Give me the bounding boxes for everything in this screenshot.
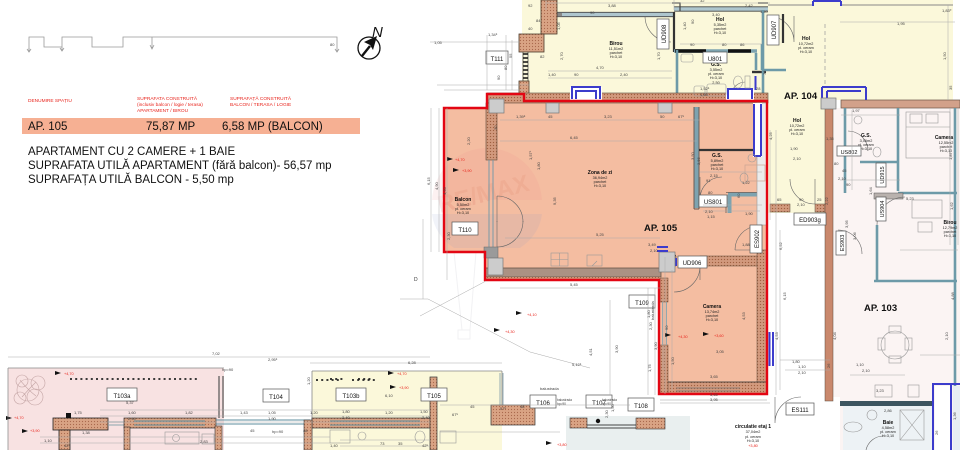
svg-text:67⁵: 67⁵ bbox=[678, 114, 684, 119]
svg-text:2,40: 2,40 bbox=[620, 72, 629, 77]
svg-text:5,25: 5,25 bbox=[596, 232, 605, 237]
svg-text:90: 90 bbox=[690, 42, 695, 47]
svg-text:35: 35 bbox=[948, 85, 953, 90]
svg-text:2,95⁵: 2,95⁵ bbox=[268, 357, 278, 362]
svg-text:UD915: UD915 bbox=[880, 166, 886, 183]
svg-text:balustrada: balustrada bbox=[650, 301, 655, 320]
svg-text:N: N bbox=[372, 24, 383, 41]
svg-text:hp=90: hp=90 bbox=[222, 367, 234, 372]
svg-text:1,20: 1,20 bbox=[310, 410, 319, 415]
svg-text:2,10: 2,10 bbox=[797, 202, 806, 207]
svg-text:H=3,10: H=3,10 bbox=[457, 211, 469, 215]
svg-text:9,35: 9,35 bbox=[552, 196, 557, 205]
svg-text:2,10: 2,10 bbox=[838, 176, 847, 181]
svg-text:1,22: 1,22 bbox=[742, 180, 751, 185]
svg-text:SUPRAFATA CONSTRUITĂ: SUPRAFATA CONSTRUITĂ bbox=[137, 95, 198, 102]
svg-text:1,10: 1,10 bbox=[856, 362, 865, 367]
svg-text:D: D bbox=[414, 277, 418, 283]
svg-text:1,10: 1,10 bbox=[44, 438, 53, 443]
svg-text:2,30: 2,30 bbox=[604, 409, 609, 418]
svg-text:3,50: 3,50 bbox=[690, 151, 695, 160]
svg-text:86: 86 bbox=[740, 42, 745, 47]
svg-text:1,75: 1,75 bbox=[74, 410, 83, 415]
svg-text:UD906: UD906 bbox=[683, 261, 702, 267]
svg-text:73: 73 bbox=[380, 441, 385, 446]
svg-text:hp=90: hp=90 bbox=[557, 402, 566, 406]
svg-text:1,80: 1,80 bbox=[536, 161, 541, 170]
svg-text:45: 45 bbox=[548, 114, 553, 119]
svg-text:T106: T106 bbox=[536, 401, 550, 407]
svg-text:45: 45 bbox=[842, 168, 847, 173]
svg-text:2,15: 2,15 bbox=[710, 173, 719, 178]
svg-text:2,22: 2,22 bbox=[824, 196, 829, 205]
svg-text:+4,70: +4,70 bbox=[455, 158, 465, 162]
svg-text:35: 35 bbox=[398, 441, 403, 446]
svg-text:4,90: 4,90 bbox=[434, 181, 439, 190]
svg-text:H=3,10: H=3,10 bbox=[714, 31, 726, 35]
svg-text:+3,90: +3,90 bbox=[30, 429, 40, 433]
svg-text:45: 45 bbox=[250, 428, 255, 433]
svg-text:1,95: 1,95 bbox=[897, 21, 906, 26]
svg-text:3,90: 3,90 bbox=[653, 341, 658, 350]
svg-text:H=3,10: H=3,10 bbox=[791, 132, 803, 136]
svg-text:H=3,10: H=3,10 bbox=[711, 167, 723, 171]
svg-text:1,97: 1,97 bbox=[852, 108, 861, 113]
svg-text:4,25: 4,25 bbox=[768, 131, 773, 140]
svg-text:42⁵: 42⁵ bbox=[422, 443, 428, 448]
svg-text:2,10: 2,10 bbox=[650, 248, 659, 253]
svg-text:+3,80: +3,80 bbox=[748, 444, 758, 448]
svg-text:80: 80 bbox=[503, 65, 508, 70]
svg-text:1,05: 1,05 bbox=[556, 21, 561, 30]
svg-text:92: 92 bbox=[528, 3, 533, 8]
svg-text:1,82: 1,82 bbox=[185, 410, 194, 415]
svg-text:4,53: 4,53 bbox=[774, 331, 779, 340]
svg-text:T109: T109 bbox=[635, 301, 649, 307]
svg-text:82: 82 bbox=[540, 54, 545, 59]
svg-text:3,06: 3,06 bbox=[852, 231, 857, 240]
svg-text:US802: US802 bbox=[841, 150, 858, 156]
svg-text:1,50: 1,50 bbox=[700, 92, 709, 97]
svg-text:48: 48 bbox=[520, 404, 525, 409]
svg-text:SUPRAFAȚĂ CONSTRUITĂ: SUPRAFAȚĂ CONSTRUITĂ bbox=[230, 95, 292, 102]
svg-text:65: 65 bbox=[777, 197, 782, 202]
svg-text:42⁵: 42⁵ bbox=[64, 443, 70, 448]
svg-text:1,36: 1,36 bbox=[952, 411, 957, 420]
svg-text:AP. 105: AP. 105 bbox=[28, 121, 67, 133]
svg-text:1,35: 1,35 bbox=[826, 136, 835, 141]
svg-text:90: 90 bbox=[574, 72, 579, 77]
svg-text:AP. 104: AP. 104 bbox=[784, 91, 818, 102]
svg-text:3,88: 3,88 bbox=[608, 3, 617, 8]
svg-text:2,83: 2,83 bbox=[200, 439, 209, 444]
svg-text:1,43: 1,43 bbox=[240, 410, 249, 415]
svg-text:H=3,10: H=3,10 bbox=[800, 50, 812, 54]
svg-text:H=3,10: H=3,10 bbox=[594, 184, 606, 188]
svg-text:UD907: UD907 bbox=[772, 20, 778, 39]
svg-text:45: 45 bbox=[470, 404, 475, 409]
svg-text:1,57⁵: 1,57⁵ bbox=[528, 150, 533, 160]
svg-text:US904: US904 bbox=[880, 201, 886, 218]
svg-text:1,50: 1,50 bbox=[420, 409, 429, 414]
svg-text:1,88: 1,88 bbox=[742, 242, 751, 247]
svg-text:1,70: 1,70 bbox=[656, 51, 661, 60]
svg-text:1,40: 1,40 bbox=[682, 21, 687, 30]
svg-text:T111: T111 bbox=[491, 57, 504, 63]
svg-text:1,10: 1,10 bbox=[798, 364, 807, 369]
svg-text:2,10: 2,10 bbox=[944, 331, 949, 340]
svg-text:1,20: 1,20 bbox=[306, 376, 311, 385]
svg-text:6,52: 6,52 bbox=[778, 241, 783, 250]
svg-text:7,02: 7,02 bbox=[212, 351, 221, 356]
svg-text:4,51: 4,51 bbox=[588, 347, 593, 356]
svg-text:37,04m2: 37,04m2 bbox=[746, 430, 761, 434]
svg-text:T110: T110 bbox=[458, 228, 472, 234]
svg-text:2,20: 2,20 bbox=[466, 136, 471, 145]
svg-text:BALCON / TERASA / LOGIE: BALCON / TERASA / LOGIE bbox=[230, 102, 291, 108]
svg-text:67⁵: 67⁵ bbox=[452, 412, 458, 417]
svg-text:3,23: 3,23 bbox=[604, 114, 613, 119]
svg-text:80: 80 bbox=[722, 42, 727, 47]
svg-text:1,38: 1,38 bbox=[82, 430, 91, 435]
svg-text:1,20: 1,20 bbox=[385, 410, 394, 415]
svg-text:UD908: UD908 bbox=[662, 24, 668, 43]
svg-text:hp=90: hp=90 bbox=[272, 429, 284, 434]
svg-text:AP. 105: AP. 105 bbox=[644, 223, 678, 234]
svg-text:5,23: 5,23 bbox=[906, 196, 915, 201]
svg-text:(inclusiv balcon / logie / ter: (inclusiv balcon / logie / terasa) bbox=[137, 102, 203, 108]
svg-text:80: 80 bbox=[834, 161, 839, 166]
svg-text:2,10: 2,10 bbox=[798, 370, 807, 375]
svg-text:APARTAMENT / BIROU: APARTAMENT / BIROU bbox=[137, 108, 189, 114]
svg-text:SUPRAFATA UTILĂ APARTAMENT (fă: SUPRAFATA UTILĂ APARTAMENT (fără balcon)… bbox=[28, 159, 332, 172]
svg-text:1,80: 1,80 bbox=[342, 409, 351, 414]
svg-text:4,88: 4,88 bbox=[950, 291, 955, 300]
svg-text:4,04: 4,04 bbox=[832, 331, 837, 340]
svg-text:76: 76 bbox=[762, 70, 767, 75]
svg-text:80: 80 bbox=[330, 42, 335, 47]
svg-text:2,40: 2,40 bbox=[342, 415, 351, 420]
svg-text:5,45: 5,45 bbox=[570, 282, 579, 287]
svg-text:+4,70: +4,70 bbox=[64, 372, 74, 376]
svg-text:2,40: 2,40 bbox=[128, 416, 137, 421]
svg-text:2,70: 2,70 bbox=[559, 51, 564, 60]
svg-text:DENUMIRE SPAȚIU: DENUMIRE SPAȚIU bbox=[28, 98, 72, 104]
svg-text:1,90: 1,90 bbox=[745, 211, 754, 216]
svg-text:1,60: 1,60 bbox=[128, 410, 137, 415]
svg-text:3,56: 3,56 bbox=[696, 156, 701, 165]
svg-text:80: 80 bbox=[708, 190, 713, 195]
svg-text:32: 32 bbox=[700, 0, 705, 3]
svg-text:50: 50 bbox=[660, 114, 665, 119]
svg-text:55: 55 bbox=[508, 53, 513, 58]
svg-text:1,62: 1,62 bbox=[949, 201, 954, 210]
svg-text:T104: T104 bbox=[269, 395, 283, 401]
svg-text:U801: U801 bbox=[708, 57, 723, 63]
svg-text:1,87: 1,87 bbox=[948, 151, 953, 160]
svg-text:1,39⁵: 1,39⁵ bbox=[516, 114, 526, 119]
svg-text:5,37: 5,37 bbox=[126, 400, 135, 405]
svg-text:1,15: 1,15 bbox=[707, 214, 716, 219]
svg-text:4,70: 4,70 bbox=[596, 65, 605, 70]
svg-text:1,34⁵: 1,34⁵ bbox=[488, 32, 498, 37]
svg-text:1,90: 1,90 bbox=[790, 146, 799, 151]
svg-text:2,30: 2,30 bbox=[446, 231, 451, 240]
svg-text:3,90: 3,90 bbox=[614, 344, 619, 353]
svg-text:1,40: 1,40 bbox=[548, 72, 557, 77]
svg-text:2,10: 2,10 bbox=[862, 368, 871, 373]
svg-text:3,65: 3,65 bbox=[710, 392, 719, 397]
svg-text:balustrada: balustrada bbox=[540, 386, 559, 391]
svg-text:1,40: 1,40 bbox=[760, 9, 769, 14]
svg-text:30: 30 bbox=[493, 125, 498, 130]
svg-text:ES111: ES111 bbox=[791, 408, 809, 414]
svg-text:H=3,10: H=3,10 bbox=[747, 439, 759, 443]
svg-text:2,40: 2,40 bbox=[422, 415, 431, 420]
svg-text:+3,80: +3,80 bbox=[557, 443, 567, 447]
svg-text:5,12⁵: 5,12⁵ bbox=[572, 362, 582, 367]
svg-text:40: 40 bbox=[528, 26, 533, 31]
svg-text:1,64: 1,64 bbox=[868, 186, 873, 195]
svg-text:6,15: 6,15 bbox=[426, 176, 431, 185]
svg-text:T105: T105 bbox=[427, 394, 441, 400]
svg-text:APARTAMENT CU 2 CAMERE + 1 BAI: APARTAMENT CU 2 CAMERE + 1 BAIE bbox=[28, 146, 235, 158]
svg-text:+4,30: +4,30 bbox=[505, 330, 515, 334]
svg-text:4,53: 4,53 bbox=[741, 311, 746, 320]
svg-text:3,40: 3,40 bbox=[712, 12, 721, 17]
svg-text:1,05: 1,05 bbox=[268, 410, 277, 415]
svg-text:3,23: 3,23 bbox=[876, 388, 885, 393]
svg-text:90: 90 bbox=[664, 325, 669, 330]
svg-text:H=3,10: H=3,10 bbox=[610, 55, 622, 59]
svg-text:57⁵: 57⁵ bbox=[500, 406, 506, 411]
svg-text:4,60: 4,60 bbox=[442, 186, 447, 195]
svg-text:75,87 MP: 75,87 MP bbox=[146, 121, 196, 133]
svg-text:1,05: 1,05 bbox=[434, 40, 443, 45]
svg-text:SUPRAFAȚA UTILĂ BALCON - 5,50: SUPRAFAȚA UTILĂ BALCON - 5,50 mp bbox=[28, 173, 234, 186]
svg-text:26: 26 bbox=[934, 430, 939, 435]
svg-text:28: 28 bbox=[756, 86, 761, 91]
svg-text:1,40: 1,40 bbox=[330, 443, 339, 448]
svg-text:6,15: 6,15 bbox=[782, 291, 787, 300]
svg-text:ED903g: ED903g bbox=[799, 218, 821, 224]
svg-text:1,50: 1,50 bbox=[670, 356, 675, 365]
svg-text:2,50: 2,50 bbox=[712, 81, 719, 85]
svg-text:6,58 MP (BALCON): 6,58 MP (BALCON) bbox=[222, 121, 323, 133]
svg-text:T108: T108 bbox=[634, 404, 648, 410]
svg-text:ES903: ES903 bbox=[840, 235, 846, 252]
svg-text:90: 90 bbox=[690, 19, 695, 24]
svg-text:2,10: 2,10 bbox=[793, 156, 802, 161]
svg-text:3,49: 3,49 bbox=[648, 242, 657, 247]
svg-text:1,50: 1,50 bbox=[942, 51, 947, 60]
svg-text:6,28: 6,28 bbox=[408, 360, 417, 365]
svg-text:+4,30: +4,30 bbox=[678, 335, 688, 339]
svg-text:26: 26 bbox=[826, 363, 831, 368]
svg-text:H=3,10: H=3,10 bbox=[882, 434, 894, 438]
svg-text:90: 90 bbox=[496, 75, 501, 80]
svg-text:1,75: 1,75 bbox=[647, 363, 652, 372]
svg-text:AP. 103: AP. 103 bbox=[864, 303, 897, 314]
svg-text:+3,60: +3,60 bbox=[714, 334, 724, 338]
svg-text:25: 25 bbox=[817, 197, 822, 202]
svg-text:T103b: T103b bbox=[342, 394, 360, 400]
svg-text:84: 84 bbox=[536, 18, 541, 23]
svg-text:H=3,10: H=3,10 bbox=[706, 318, 718, 322]
svg-text:+3,90: +3,90 bbox=[399, 386, 409, 390]
svg-text:1,90: 1,90 bbox=[268, 416, 277, 421]
svg-text:3,95: 3,95 bbox=[844, 219, 849, 228]
svg-text:6,10: 6,10 bbox=[385, 393, 394, 398]
svg-text:90: 90 bbox=[846, 182, 851, 187]
svg-text:3,05: 3,05 bbox=[716, 349, 725, 354]
svg-text:6,45: 6,45 bbox=[570, 135, 579, 140]
svg-text:1,52⁵: 1,52⁵ bbox=[700, 86, 710, 91]
svg-text:ES902: ES902 bbox=[755, 229, 761, 248]
svg-text:+4,70: +4,70 bbox=[14, 416, 24, 420]
svg-text:91: 91 bbox=[706, 178, 711, 183]
svg-text:90: 90 bbox=[590, 10, 595, 15]
svg-text:H=3,10: H=3,10 bbox=[710, 76, 722, 80]
svg-text:2,30: 2,30 bbox=[648, 321, 653, 330]
svg-text:60: 60 bbox=[736, 193, 741, 198]
svg-text:+4,70: +4,70 bbox=[397, 372, 407, 376]
svg-text:hp=90: hp=90 bbox=[602, 402, 611, 406]
svg-text:H=3,10: H=3,10 bbox=[860, 147, 872, 151]
svg-text:+4,10: +4,10 bbox=[527, 313, 537, 317]
svg-text:48: 48 bbox=[303, 428, 308, 433]
svg-text:3,65: 3,65 bbox=[710, 374, 719, 379]
svg-text:+3,90: +3,90 bbox=[462, 169, 472, 173]
svg-text:2,42: 2,42 bbox=[745, 3, 754, 8]
svg-text:3,95: 3,95 bbox=[710, 397, 719, 402]
svg-text:1,83⁰: 1,83⁰ bbox=[942, 8, 952, 13]
svg-text:2,86: 2,86 bbox=[884, 408, 893, 413]
